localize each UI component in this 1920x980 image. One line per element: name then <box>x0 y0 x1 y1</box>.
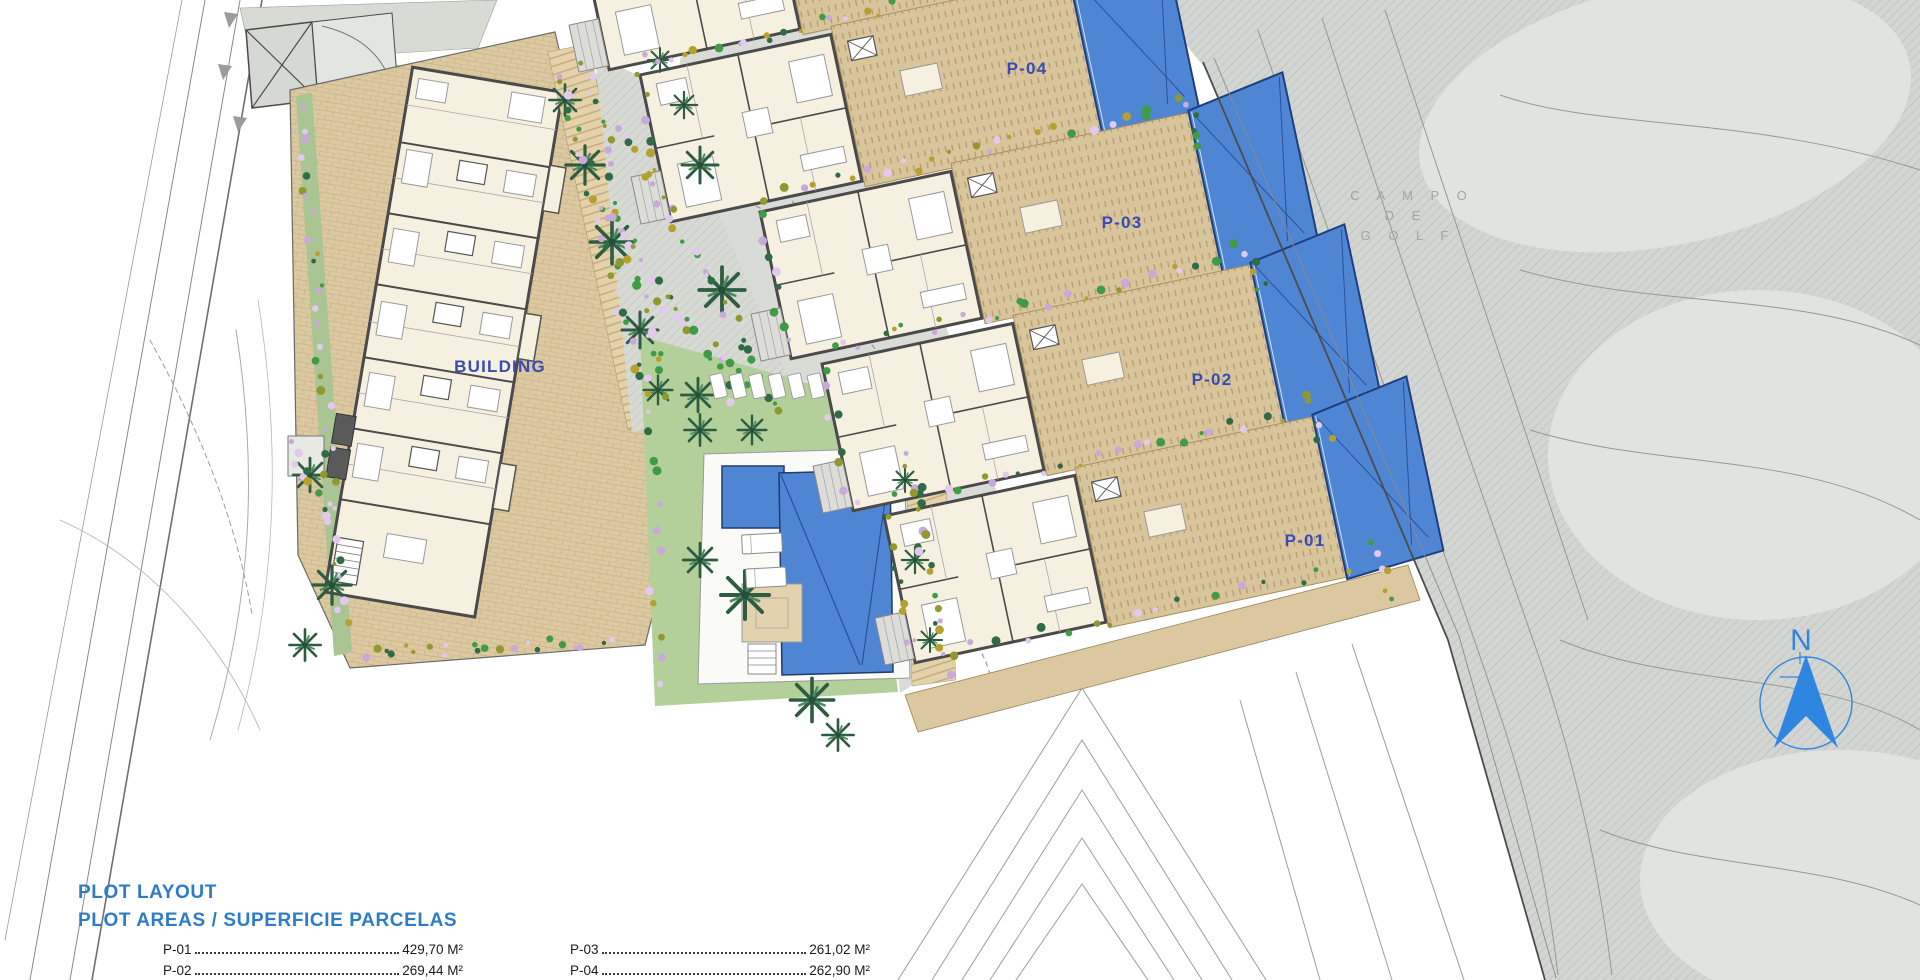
shrub-dot <box>1107 623 1112 628</box>
shrub-dot <box>713 341 719 347</box>
shrub-dot <box>577 644 584 651</box>
shrub-dot <box>900 600 908 608</box>
pool-steps <box>748 644 776 674</box>
shrub-dot <box>644 294 648 298</box>
shrub-dot <box>576 127 581 132</box>
shrub-dot <box>646 148 655 157</box>
shrub-dot <box>899 579 904 584</box>
area-row-p04: P-04 262,90 M² <box>570 963 870 978</box>
furniture <box>862 244 893 275</box>
shrub-dot <box>916 507 921 512</box>
shrub-dot <box>904 639 910 645</box>
shrub-dot <box>318 374 323 379</box>
shrub-dot <box>609 637 615 643</box>
shrub-dot <box>650 181 656 187</box>
shrub-dot <box>632 281 641 290</box>
shrub-dot <box>603 244 609 250</box>
shrub-dot <box>1037 623 1046 632</box>
shrub-dot <box>1240 426 1247 433</box>
shrub-dot <box>736 315 743 322</box>
shrub-dot <box>655 59 661 65</box>
shrub-dot <box>315 489 322 496</box>
shrub-dot <box>826 15 832 21</box>
north-label: N <box>1790 624 1812 657</box>
shrub-dot <box>993 136 1000 143</box>
shrub-dot <box>1122 112 1131 121</box>
shrub-dot <box>301 135 310 144</box>
shrub-dot <box>1329 435 1336 442</box>
shrub-dot <box>1229 239 1238 248</box>
shrub-dot <box>340 596 349 605</box>
shrub-dot <box>780 183 789 192</box>
plot-label-p01: P-01 <box>1285 531 1326 550</box>
shrub-dot <box>332 562 336 566</box>
shrub-dot <box>1097 286 1106 295</box>
shrub-dot <box>644 308 649 313</box>
shrub-dot <box>334 607 341 614</box>
shrub-dot <box>604 146 611 153</box>
shrub-dot <box>362 654 370 662</box>
shrub-dot <box>599 206 603 210</box>
kids-pool <box>722 466 784 528</box>
shrub-dot <box>472 642 478 648</box>
shrub-dot <box>578 61 583 66</box>
shrub-dot <box>630 338 637 345</box>
shrub-dot <box>1305 397 1312 404</box>
shrub-dot <box>300 104 306 110</box>
shrub-dot <box>1058 463 1063 468</box>
palm-tree-icon <box>289 629 320 660</box>
shrub-dot <box>653 297 661 305</box>
row-value: 261,02 M² <box>809 942 870 957</box>
shrub-dot <box>823 367 830 374</box>
shrub-dot <box>708 356 712 360</box>
shrub-dot <box>1041 471 1046 476</box>
golf-label-line3: G O L F <box>1361 228 1456 243</box>
shrub-dot <box>715 44 724 53</box>
plot-label-p02: P-02 <box>1192 370 1233 389</box>
shrub-dot <box>1194 142 1202 150</box>
shrub-dot <box>327 501 332 506</box>
shrub-dot <box>834 410 842 418</box>
shrub-dot <box>481 644 489 652</box>
shrub-dot <box>1241 251 1247 257</box>
lift-shaft <box>326 447 351 480</box>
shrub-dot <box>311 259 316 264</box>
shrub-dot <box>644 374 652 382</box>
furniture <box>742 107 773 138</box>
shrub-dot <box>633 239 637 243</box>
shrub-dot <box>559 641 566 648</box>
shrub-dot <box>1261 580 1265 584</box>
shrub-dot <box>645 587 654 596</box>
building-label: BUILDING <box>454 357 546 376</box>
shrub-dot <box>917 499 926 508</box>
palm-tree-icon <box>822 719 853 750</box>
shrub-dot <box>595 218 601 224</box>
shrub-dot <box>660 306 668 314</box>
shrub-dot <box>1226 418 1233 425</box>
shrub-dot <box>740 39 746 45</box>
shrub-dot <box>1148 270 1156 278</box>
shrub-dot <box>475 648 481 654</box>
palm-tree-icon <box>681 378 715 412</box>
shrub-dot <box>689 46 697 54</box>
shrub-dot <box>338 575 342 579</box>
shrub-dot <box>892 491 898 497</box>
shrub-dot <box>1067 129 1076 138</box>
shrub-dot <box>1121 279 1130 288</box>
shrub-dot <box>642 52 648 58</box>
shrub-dot <box>1066 630 1073 637</box>
shrub-dot <box>915 168 922 175</box>
shrub-dot <box>950 651 959 660</box>
shrub-dot <box>666 294 671 299</box>
shrub-dot <box>1035 129 1041 135</box>
shrub-dot <box>427 644 433 650</box>
shrub-dot <box>526 641 530 645</box>
shrub-dot <box>1313 436 1320 443</box>
shrub-dot <box>601 120 605 124</box>
shrub-dot <box>1084 296 1088 300</box>
shrub-dot <box>912 638 916 642</box>
shrub-dot <box>1313 567 1318 572</box>
shrub-dot <box>995 316 999 320</box>
shrub-dot <box>1174 596 1180 602</box>
shrub-dot <box>759 210 767 218</box>
shrub-dot <box>573 646 577 650</box>
shrub-dot <box>992 636 1001 645</box>
shrub-dot <box>1252 258 1260 266</box>
shrub-dot <box>921 530 930 539</box>
shrub-dot <box>621 232 628 239</box>
shrub-dot <box>1374 550 1381 557</box>
shrub-dot <box>331 446 336 451</box>
shrub-dot <box>726 359 735 368</box>
shrub-dot <box>615 289 619 293</box>
shrub-dot <box>850 175 856 181</box>
shrub-dot <box>855 500 861 506</box>
shrub-dot <box>658 634 665 641</box>
shrub-dot <box>303 467 311 475</box>
shrub-dot <box>444 643 448 647</box>
shrub-dot <box>646 334 650 338</box>
shrub-dot <box>1045 304 1052 311</box>
shrub-dot <box>717 363 724 370</box>
shrub-dot <box>689 326 698 335</box>
shrub-dot <box>374 645 382 653</box>
shrub-dot <box>1172 264 1177 269</box>
row-leader <box>602 951 807 954</box>
shrub-dot <box>662 195 666 199</box>
shrub-dot <box>1263 281 1268 286</box>
shrub-dot <box>1384 567 1391 574</box>
row-value: 429,70 M² <box>402 942 463 957</box>
shrub-dot <box>635 372 643 380</box>
shrub-dot <box>1142 105 1151 114</box>
shrub-dot <box>1193 132 1200 139</box>
shrub-dot <box>989 479 997 487</box>
shrub-dot <box>824 414 831 421</box>
shrub-dot <box>332 506 337 511</box>
shrub-dot <box>1156 438 1165 447</box>
furniture <box>986 548 1017 579</box>
shrub-dot <box>1280 419 1285 424</box>
shrub-dot <box>1250 269 1257 276</box>
shrub-dot <box>680 239 684 243</box>
shrub-dot <box>670 206 677 213</box>
shrub-dot <box>840 339 846 345</box>
row-leader <box>602 972 807 975</box>
shrub-dot <box>891 566 896 571</box>
shrub-dot <box>652 168 656 172</box>
shrub-dot <box>898 323 903 328</box>
shrub-dot <box>615 258 624 267</box>
shrub-dot <box>738 344 744 350</box>
shrub-dot <box>320 471 328 479</box>
shrub-dot <box>864 7 871 14</box>
shrub-dot <box>443 653 448 658</box>
shrub-dot <box>615 125 622 132</box>
sun-lounger <box>746 567 787 588</box>
shrub-dot <box>780 322 789 331</box>
shrub-dot <box>1255 287 1259 291</box>
shrub-dot <box>1175 94 1183 102</box>
shrub-dot <box>855 346 860 351</box>
shrub-dot <box>650 457 658 465</box>
shrub-dot <box>1238 582 1246 590</box>
shrub-dot <box>938 618 943 623</box>
shrub-dot <box>747 356 755 364</box>
golf-label-line2: D E <box>1385 208 1428 223</box>
shrub-dot <box>655 277 663 285</box>
row-label: P-01 <box>163 942 192 957</box>
shrub-dot <box>646 137 655 146</box>
shrub-dot <box>291 461 298 468</box>
shrub-dot <box>298 154 305 161</box>
shrub-dot <box>404 643 408 647</box>
shrub-dot <box>564 91 573 100</box>
row-label: P-02 <box>163 963 192 978</box>
shrub-dot <box>323 428 328 433</box>
shrub-dot <box>317 344 323 350</box>
legend: PLOT LAYOUT PLOT AREAS / SUPERFICIE PARC… <box>78 880 938 978</box>
shrub-dot <box>787 338 791 342</box>
shrub-dot <box>653 466 662 475</box>
shrub-dot <box>584 191 590 197</box>
shrub-dot <box>935 605 942 612</box>
shrub-dot <box>1212 257 1221 266</box>
shrub-dot <box>1183 102 1189 108</box>
shrub-dot <box>1115 446 1122 453</box>
shrub-dot <box>645 391 651 397</box>
shrub-dot <box>316 287 322 293</box>
shrub-dot <box>602 641 606 645</box>
shrub-dot <box>345 619 352 626</box>
shrub-dot <box>799 29 803 33</box>
shrub-dot <box>647 275 655 283</box>
shrub-dot <box>1383 588 1388 593</box>
shrub-dot <box>776 284 782 290</box>
shrub-dot <box>904 451 909 456</box>
shrub-dot <box>864 165 871 172</box>
shrub-dot <box>892 327 897 332</box>
shrub-dot <box>312 357 320 365</box>
palm-tree-icon <box>683 543 717 577</box>
shrub-dot <box>653 200 660 207</box>
row-label: P-04 <box>570 963 599 978</box>
shrub-dot <box>1096 450 1102 456</box>
shrub-dot <box>885 514 891 520</box>
shrub-dot <box>324 518 331 525</box>
shrub-dot <box>666 215 673 222</box>
palm-tree-icon <box>682 147 718 183</box>
shrub-dot <box>337 556 345 564</box>
shrub-dot <box>838 448 846 456</box>
shrub-dot <box>685 317 690 322</box>
shrub-dot <box>557 79 562 84</box>
shrub-dot <box>639 267 643 271</box>
shrub-dot <box>658 351 663 356</box>
shrub-dot <box>674 307 678 311</box>
shrub-dot <box>801 184 808 191</box>
shrub-dot <box>910 489 918 497</box>
site-plan-page: C A M P O D E G O L F <box>0 0 1920 980</box>
shrub-dot <box>608 161 614 167</box>
shrub-dot <box>332 478 340 486</box>
shrub-dot <box>646 409 650 413</box>
shrub-dot <box>311 209 316 214</box>
shrub-dot <box>304 236 311 243</box>
shrub-dot <box>967 639 973 645</box>
shrub-dot <box>655 366 663 374</box>
shrub-dot <box>1264 412 1272 420</box>
area-row-p01: P-01 429,70 M² <box>163 942 463 957</box>
shrub-dot <box>557 74 563 80</box>
shrub-dot <box>1144 439 1150 445</box>
shrub-dot <box>1316 422 1322 428</box>
shrub-dot <box>496 645 504 653</box>
shrub-dot <box>511 645 518 652</box>
shrub-dot <box>918 483 927 492</box>
shrub-dot <box>651 351 657 357</box>
shrub-dot <box>411 650 415 654</box>
row-leader <box>195 972 400 975</box>
shrub-dot <box>960 312 965 317</box>
shrub-dot <box>1205 428 1212 435</box>
shrub-dot <box>302 193 307 198</box>
row-leader <box>195 951 400 954</box>
shrub-dot <box>639 258 643 262</box>
shrub-dot <box>302 129 308 135</box>
palm-tree-icon <box>566 146 604 184</box>
palm-tree-icon <box>671 92 697 118</box>
shrub-dot <box>613 201 617 205</box>
shrub-dot <box>295 449 304 458</box>
shrub-dot <box>1193 112 1199 118</box>
shrub-dot <box>1025 638 1031 644</box>
shrub-dot <box>631 146 638 153</box>
shrub-dot <box>565 115 571 121</box>
shrub-dot <box>1016 471 1020 475</box>
shrub-dot <box>928 562 935 569</box>
row-value: 262,90 M² <box>809 963 870 978</box>
shrub-dot <box>641 116 650 125</box>
shrub-dot <box>303 477 312 486</box>
shrub-dot <box>915 547 924 556</box>
shrub-dot <box>936 317 942 323</box>
palm-tree-icon <box>684 414 715 445</box>
shrub-dot <box>630 365 639 374</box>
shrub-dot <box>835 173 840 178</box>
golf-label-line1: C A M P O <box>1350 188 1473 203</box>
shrub-dot <box>598 236 605 243</box>
shrub-dot <box>1050 123 1057 130</box>
shrub-dot <box>764 32 770 38</box>
shrub-dot <box>1346 569 1351 574</box>
shrub-dot <box>947 671 955 679</box>
planter-square <box>742 584 802 642</box>
shrub-dot <box>303 172 311 180</box>
shrub-dot <box>720 311 727 318</box>
shrub-dot <box>1094 620 1101 627</box>
shrub-dot <box>658 654 666 662</box>
shrub-dot <box>644 427 652 435</box>
shrub-dot <box>726 398 734 406</box>
shrub-dot <box>767 38 773 44</box>
site-plan-drawing: C A M P O D E G O L F <box>0 0 1920 980</box>
shrub-dot <box>1212 592 1219 599</box>
shrub-dot <box>758 236 767 245</box>
shrub-dot <box>832 342 839 349</box>
shrub-dot <box>1134 440 1142 448</box>
shrub-dot <box>1064 290 1072 298</box>
shrub-dot <box>607 272 614 279</box>
shrub-dot <box>645 92 650 97</box>
area-row-p03: P-03 261,02 M² <box>570 942 870 957</box>
shrub-dot <box>650 600 657 607</box>
plot-label-p04: P-04 <box>1007 59 1048 78</box>
shrub-dot <box>657 681 663 687</box>
shrub-dot <box>1020 299 1029 308</box>
shrub-dot <box>839 487 847 495</box>
shrub-dot <box>1134 609 1142 617</box>
shrub-dot <box>668 224 676 232</box>
shrub-dot <box>982 473 988 479</box>
shrub-dot <box>623 319 629 325</box>
shrub-dot <box>657 502 663 508</box>
shrub-dot <box>1090 126 1099 135</box>
shrub-dot <box>1116 287 1121 292</box>
shrub-dot <box>314 321 320 327</box>
shrub-dot <box>708 277 716 285</box>
shrub-dot <box>744 345 752 353</box>
shrub-dot <box>321 450 329 458</box>
shrub-dot <box>579 156 588 165</box>
shrub-dot <box>723 300 728 305</box>
shrub-dot <box>289 439 294 444</box>
shrub-dot <box>773 401 777 405</box>
shrub-dot <box>625 138 633 146</box>
shrub-dot <box>641 173 649 181</box>
shrub-dot <box>693 247 701 255</box>
shrub-dot <box>986 317 993 324</box>
shrub-dot <box>890 543 897 550</box>
shrub-dot <box>929 156 935 162</box>
shrub-dot <box>932 330 937 335</box>
shrub-dot <box>932 593 938 599</box>
sun-lounger <box>742 533 783 554</box>
